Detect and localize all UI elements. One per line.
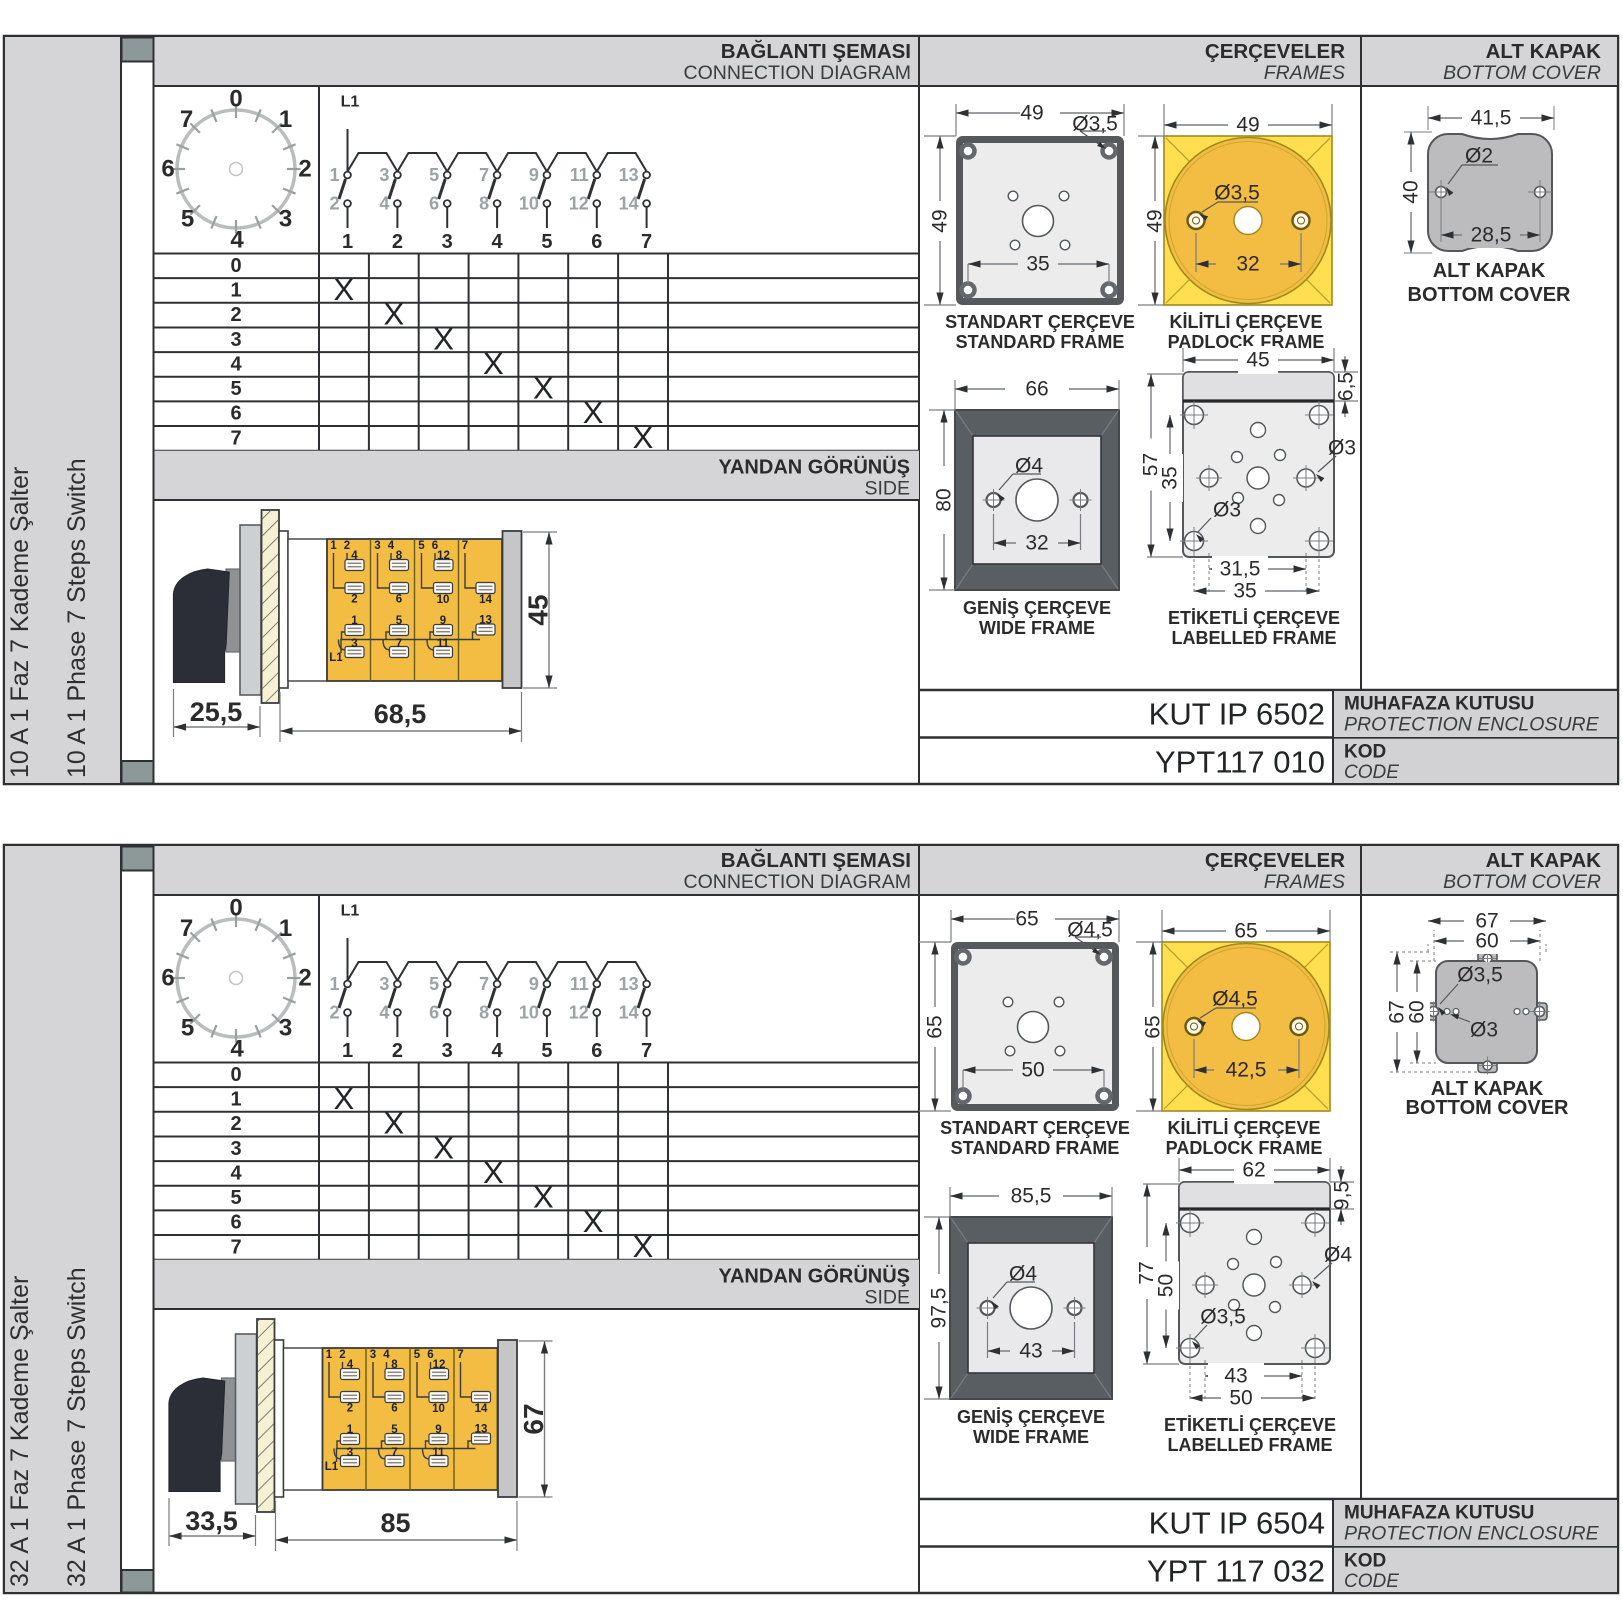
svg-text:X: X [334, 272, 355, 307]
svg-text:9: 9 [435, 1424, 441, 1436]
svg-text:10: 10 [519, 1003, 539, 1023]
svg-text:6: 6 [429, 194, 439, 214]
svg-text:10 A 1 Phase 7 Steps Switch: 10 A 1 Phase 7 Steps Switch [63, 458, 91, 778]
svg-text:5: 5 [418, 540, 425, 552]
svg-text:6: 6 [396, 594, 402, 606]
svg-text:1: 1 [326, 1349, 333, 1361]
svg-text:Ø3: Ø3 [1328, 437, 1356, 460]
svg-text:13: 13 [479, 615, 492, 627]
svg-text:2: 2 [230, 304, 241, 326]
svg-text:7: 7 [641, 1040, 652, 1062]
svg-text:50: 50 [1155, 1274, 1178, 1297]
svg-text:7: 7 [479, 974, 489, 994]
svg-text:1: 1 [351, 615, 358, 627]
svg-text:PROTECTION ENCLOSURE: PROTECTION ENCLOSURE [1344, 1523, 1600, 1545]
svg-text:43: 43 [1019, 1340, 1042, 1363]
svg-text:14: 14 [619, 1003, 639, 1023]
svg-text:1: 1 [230, 1088, 241, 1110]
svg-text:49: 49 [1020, 102, 1043, 125]
svg-text:GENİŞ ÇERÇEVE: GENİŞ ÇERÇEVE [963, 598, 1111, 618]
svg-text:65: 65 [924, 1015, 947, 1038]
svg-text:4: 4 [230, 1036, 244, 1063]
svg-text:7: 7 [462, 540, 468, 552]
svg-text:12: 12 [437, 550, 450, 562]
svg-text:X: X [533, 371, 554, 406]
svg-text:14: 14 [475, 1403, 488, 1415]
svg-text:5: 5 [414, 1349, 421, 1361]
svg-text:31,5: 31,5 [1220, 558, 1261, 581]
svg-text:ÇERÇEVELER: ÇERÇEVELER [1205, 40, 1345, 63]
svg-text:7: 7 [230, 427, 241, 449]
svg-text:0: 0 [229, 895, 242, 922]
svg-text:80: 80 [933, 488, 956, 511]
svg-text:4: 4 [230, 353, 242, 375]
svg-text:KOD: KOD [1344, 1551, 1386, 1572]
svg-text:4: 4 [492, 1040, 504, 1062]
svg-text:MUHAFAZA KUTUSU: MUHAFAZA KUTUSU [1344, 1503, 1534, 1524]
svg-text:1: 1 [342, 231, 353, 253]
svg-text:X: X [633, 420, 654, 455]
svg-text:6: 6 [429, 1003, 439, 1023]
svg-text:SIDE: SIDE [864, 1287, 910, 1309]
svg-text:BAĞLANTI ŞEMASI: BAĞLANTI ŞEMASI [721, 39, 911, 63]
svg-text:FRAMES: FRAMES [1264, 871, 1345, 893]
svg-text:9: 9 [529, 165, 539, 185]
svg-text:WIDE FRAME: WIDE FRAME [979, 618, 1095, 638]
svg-text:SIDE: SIDE [864, 478, 910, 500]
svg-text:YPT 117 032: YPT 117 032 [1147, 1554, 1325, 1589]
svg-text:4: 4 [383, 1349, 390, 1361]
svg-text:0: 0 [230, 1064, 241, 1086]
svg-text:KİLİTLİ ÇERÇEVE: KİLİTLİ ÇERÇEVE [1169, 312, 1322, 332]
svg-text:STANDARD FRAME: STANDARD FRAME [956, 332, 1125, 352]
svg-text:Ø4,5: Ø4,5 [1067, 919, 1113, 942]
svg-text:ALT KAPAK: ALT KAPAK [1486, 849, 1602, 872]
svg-text:4: 4 [379, 194, 389, 214]
svg-text:GENİŞ ÇERÇEVE: GENİŞ ÇERÇEVE [957, 1407, 1105, 1427]
svg-text:5: 5 [181, 206, 194, 233]
svg-text:X: X [334, 1081, 355, 1116]
svg-text:2: 2 [392, 231, 403, 253]
svg-text:60: 60 [1475, 930, 1498, 953]
svg-text:YANDAN GÖRÜNÜŞ: YANDAN GÖRÜNÜŞ [718, 1265, 910, 1288]
svg-text:L1: L1 [325, 1461, 339, 1473]
svg-text:8: 8 [479, 1003, 489, 1023]
svg-text:6: 6 [161, 965, 174, 992]
svg-text:3: 3 [379, 165, 389, 185]
svg-text:YPT117 010: YPT117 010 [1155, 745, 1325, 780]
svg-text:5: 5 [541, 231, 552, 253]
svg-text:8: 8 [479, 194, 489, 214]
svg-text:32: 32 [1025, 532, 1048, 555]
svg-text:LABELLED FRAME: LABELLED FRAME [1168, 1435, 1333, 1455]
svg-text:Ø3,5: Ø3,5 [1072, 113, 1118, 136]
svg-text:43: 43 [1224, 1365, 1247, 1388]
svg-text:2: 2 [230, 1113, 241, 1135]
svg-text:1: 1 [347, 1424, 354, 1436]
svg-text:50: 50 [1021, 1059, 1044, 1082]
svg-text:45: 45 [523, 594, 554, 625]
svg-text:STANDART ÇERÇEVE: STANDART ÇERÇEVE [940, 1118, 1130, 1138]
svg-text:3: 3 [379, 974, 389, 994]
svg-text:7: 7 [457, 1349, 463, 1361]
svg-text:40: 40 [1400, 180, 1423, 203]
svg-text:Ø4,5: Ø4,5 [1212, 988, 1258, 1011]
svg-text:3: 3 [230, 329, 241, 351]
svg-text:3: 3 [279, 206, 292, 233]
svg-text:3: 3 [230, 1138, 241, 1160]
svg-text:7: 7 [641, 231, 652, 253]
svg-text:X: X [383, 297, 404, 332]
svg-text:35: 35 [1233, 580, 1256, 603]
svg-text:2: 2 [329, 194, 339, 214]
svg-text:X: X [433, 321, 454, 356]
svg-text:0: 0 [230, 255, 241, 277]
svg-text:BAĞLANTI ŞEMASI: BAĞLANTI ŞEMASI [721, 848, 911, 872]
svg-text:5: 5 [396, 615, 403, 627]
svg-text:33,5: 33,5 [185, 1506, 238, 1536]
svg-text:97,5: 97,5 [928, 1288, 951, 1329]
svg-text:X: X [583, 395, 604, 430]
svg-text:9: 9 [440, 615, 446, 627]
svg-text:13: 13 [619, 974, 639, 994]
svg-text:25,5: 25,5 [190, 697, 243, 727]
svg-text:10: 10 [432, 1403, 445, 1415]
svg-text:0: 0 [229, 86, 242, 113]
svg-text:6,5: 6,5 [1335, 372, 1358, 401]
svg-text:Ø3: Ø3 [1470, 1019, 1498, 1042]
svg-text:7: 7 [180, 106, 193, 133]
svg-text:FRAMES: FRAMES [1264, 62, 1345, 84]
svg-text:3: 3 [374, 540, 380, 552]
svg-text:ETİKETLİ ÇERÇEVE: ETİKETLİ ÇERÇEVE [1164, 1415, 1336, 1435]
svg-text:2: 2 [351, 594, 357, 606]
svg-text:1: 1 [279, 915, 292, 942]
svg-text:X: X [583, 1204, 604, 1239]
svg-text:11: 11 [432, 1447, 445, 1459]
svg-text:60: 60 [1406, 1000, 1429, 1023]
svg-text:Ø3,5: Ø3,5 [1457, 964, 1503, 987]
svg-text:11: 11 [570, 165, 589, 185]
svg-text:67: 67 [518, 1403, 549, 1434]
svg-text:KİLİTLİ ÇERÇEVE: KİLİTLİ ÇERÇEVE [1167, 1118, 1320, 1138]
svg-text:8: 8 [391, 1359, 398, 1371]
svg-text:2: 2 [329, 1003, 339, 1023]
svg-text:3: 3 [442, 1040, 453, 1062]
svg-text:KOD: KOD [1344, 742, 1386, 763]
svg-text:X: X [433, 1130, 454, 1165]
svg-text:1: 1 [330, 540, 337, 552]
svg-text:BOTTOM COVER: BOTTOM COVER [1408, 284, 1572, 306]
svg-text:X: X [483, 1155, 504, 1190]
svg-text:5: 5 [230, 1187, 241, 1209]
svg-text:3: 3 [279, 1015, 292, 1042]
svg-text:2: 2 [339, 1349, 345, 1361]
svg-text:8: 8 [396, 550, 403, 562]
svg-text:6: 6 [161, 156, 174, 183]
svg-text:X: X [533, 1180, 554, 1215]
svg-text:KUT IP 6504: KUT IP 6504 [1149, 1506, 1325, 1541]
svg-text:ALT KAPAK: ALT KAPAK [1486, 40, 1602, 63]
svg-text:10: 10 [519, 194, 539, 214]
svg-text:1: 1 [342, 1040, 353, 1062]
svg-text:7: 7 [180, 915, 193, 942]
svg-text:ALT KAPAK: ALT KAPAK [1433, 260, 1546, 282]
svg-text:7: 7 [391, 1447, 397, 1459]
svg-text:10: 10 [437, 594, 450, 606]
svg-text:45: 45 [1246, 349, 1269, 372]
svg-text:L1: L1 [329, 652, 343, 664]
svg-text:CODE: CODE [1344, 762, 1399, 783]
svg-text:13: 13 [619, 165, 639, 185]
svg-text:12: 12 [569, 1003, 589, 1023]
svg-text:4: 4 [230, 227, 244, 254]
svg-text:9: 9 [529, 974, 539, 994]
svg-text:10 A 1 Faz 7 Kademe Şalter: 10 A 1 Faz 7 Kademe Şalter [6, 467, 34, 778]
svg-text:L1: L1 [341, 903, 360, 920]
svg-text:LABELLED FRAME: LABELLED FRAME [1172, 628, 1337, 648]
svg-text:32: 32 [1236, 253, 1259, 276]
svg-text:KUT IP 6502: KUT IP 6502 [1149, 697, 1325, 732]
svg-text:BOTTOM COVER: BOTTOM COVER [1443, 62, 1601, 84]
svg-text:4: 4 [492, 231, 504, 253]
svg-text:32 A 1 Faz 7 Kademe Şalter: 32 A 1 Faz 7 Kademe Şalter [6, 1276, 34, 1587]
svg-text:14: 14 [479, 594, 492, 606]
svg-text:1: 1 [230, 279, 241, 301]
svg-text:35: 35 [1026, 253, 1049, 276]
svg-text:WIDE FRAME: WIDE FRAME [973, 1427, 1089, 1447]
svg-text:49: 49 [1236, 114, 1259, 137]
svg-text:66: 66 [1025, 378, 1048, 401]
svg-text:3: 3 [347, 1447, 353, 1459]
svg-text:2: 2 [298, 156, 311, 183]
svg-text:68,5: 68,5 [374, 699, 427, 729]
svg-text:PROTECTION ENCLOSURE: PROTECTION ENCLOSURE [1344, 714, 1600, 736]
svg-text:85,5: 85,5 [1011, 1185, 1052, 1208]
svg-text:STANDARD FRAME: STANDARD FRAME [951, 1138, 1120, 1158]
svg-text:3: 3 [370, 1349, 376, 1361]
svg-text:6: 6 [230, 1212, 241, 1234]
svg-text:CONNECTION DIAGRAM: CONNECTION DIAGRAM [683, 62, 911, 84]
svg-text:STANDART ÇERÇEVE: STANDART ÇERÇEVE [945, 312, 1135, 332]
svg-text:7: 7 [230, 1236, 241, 1258]
svg-text:3: 3 [442, 231, 453, 253]
svg-text:CODE: CODE [1344, 1571, 1399, 1592]
svg-text:62: 62 [1242, 1159, 1265, 1182]
svg-text:1: 1 [279, 106, 292, 133]
svg-text:9,5: 9,5 [1331, 1181, 1354, 1210]
svg-text:35: 35 [1159, 466, 1182, 489]
svg-text:YANDAN GÖRÜNÜŞ: YANDAN GÖRÜNÜŞ [718, 456, 910, 479]
svg-text:X: X [483, 346, 504, 381]
svg-text:4: 4 [347, 1359, 354, 1371]
svg-text:11: 11 [570, 974, 589, 994]
svg-text:CONNECTION DIAGRAM: CONNECTION DIAGRAM [683, 871, 911, 893]
svg-text:12: 12 [433, 1359, 446, 1371]
svg-text:12: 12 [569, 194, 589, 214]
svg-text:L1: L1 [341, 94, 360, 111]
svg-text:6: 6 [591, 231, 602, 253]
svg-text:65: 65 [1142, 1015, 1165, 1038]
svg-text:Ø2: Ø2 [1465, 145, 1493, 168]
svg-text:4: 4 [351, 550, 358, 562]
svg-text:13: 13 [475, 1424, 488, 1436]
svg-text:Ø3: Ø3 [1213, 499, 1241, 522]
svg-text:Ø3,5: Ø3,5 [1200, 1306, 1246, 1329]
svg-text:49: 49 [1144, 209, 1167, 232]
svg-text:3: 3 [351, 638, 357, 650]
svg-text:7: 7 [479, 165, 489, 185]
svg-text:PADLOCK FRAME: PADLOCK FRAME [1166, 1138, 1323, 1158]
svg-text:4: 4 [230, 1162, 242, 1184]
svg-text:50: 50 [1229, 1387, 1252, 1410]
svg-text:Ø4: Ø4 [1324, 1244, 1352, 1267]
svg-text:5: 5 [391, 1424, 398, 1436]
svg-text:2: 2 [392, 1040, 403, 1062]
svg-text:28,5: 28,5 [1471, 224, 1512, 247]
svg-text:49: 49 [929, 209, 952, 232]
svg-text:6: 6 [230, 403, 241, 425]
svg-text:ETİKETLİ ÇERÇEVE: ETİKETLİ ÇERÇEVE [1168, 608, 1340, 628]
svg-text:32 A 1 Phase 7 Steps Switch: 32 A 1 Phase 7 Steps Switch [63, 1267, 91, 1587]
svg-text:4: 4 [379, 1003, 389, 1023]
svg-text:7: 7 [396, 638, 402, 650]
svg-text:6: 6 [591, 1040, 602, 1062]
svg-text:5: 5 [429, 974, 439, 994]
svg-text:1: 1 [329, 165, 339, 185]
svg-text:X: X [633, 1229, 654, 1264]
svg-text:BOTTOM COVER: BOTTOM COVER [1443, 871, 1601, 893]
svg-text:BOTTOM COVER: BOTTOM COVER [1406, 1097, 1570, 1119]
svg-text:2: 2 [298, 965, 311, 992]
svg-text:42,5: 42,5 [1226, 1059, 1267, 1082]
svg-text:5: 5 [429, 165, 439, 185]
svg-text:2: 2 [347, 1403, 353, 1415]
svg-text:65: 65 [1015, 908, 1038, 931]
svg-text:4: 4 [388, 540, 395, 552]
svg-text:11: 11 [437, 638, 450, 650]
svg-text:65: 65 [1234, 920, 1257, 943]
svg-text:41,5: 41,5 [1471, 107, 1512, 130]
svg-text:14: 14 [619, 194, 639, 214]
svg-text:MUHAFAZA KUTUSU: MUHAFAZA KUTUSU [1344, 694, 1534, 715]
svg-text:Ø3,5: Ø3,5 [1214, 182, 1260, 205]
svg-text:5: 5 [541, 1040, 552, 1062]
svg-text:X: X [383, 1106, 404, 1141]
svg-text:85: 85 [380, 1508, 410, 1538]
svg-text:5: 5 [181, 1015, 194, 1042]
svg-text:5: 5 [230, 378, 241, 400]
svg-text:ÇERÇEVELER: ÇERÇEVELER [1205, 849, 1345, 872]
svg-text:2: 2 [344, 540, 350, 552]
svg-text:6: 6 [391, 1403, 397, 1415]
svg-text:1: 1 [329, 974, 339, 994]
